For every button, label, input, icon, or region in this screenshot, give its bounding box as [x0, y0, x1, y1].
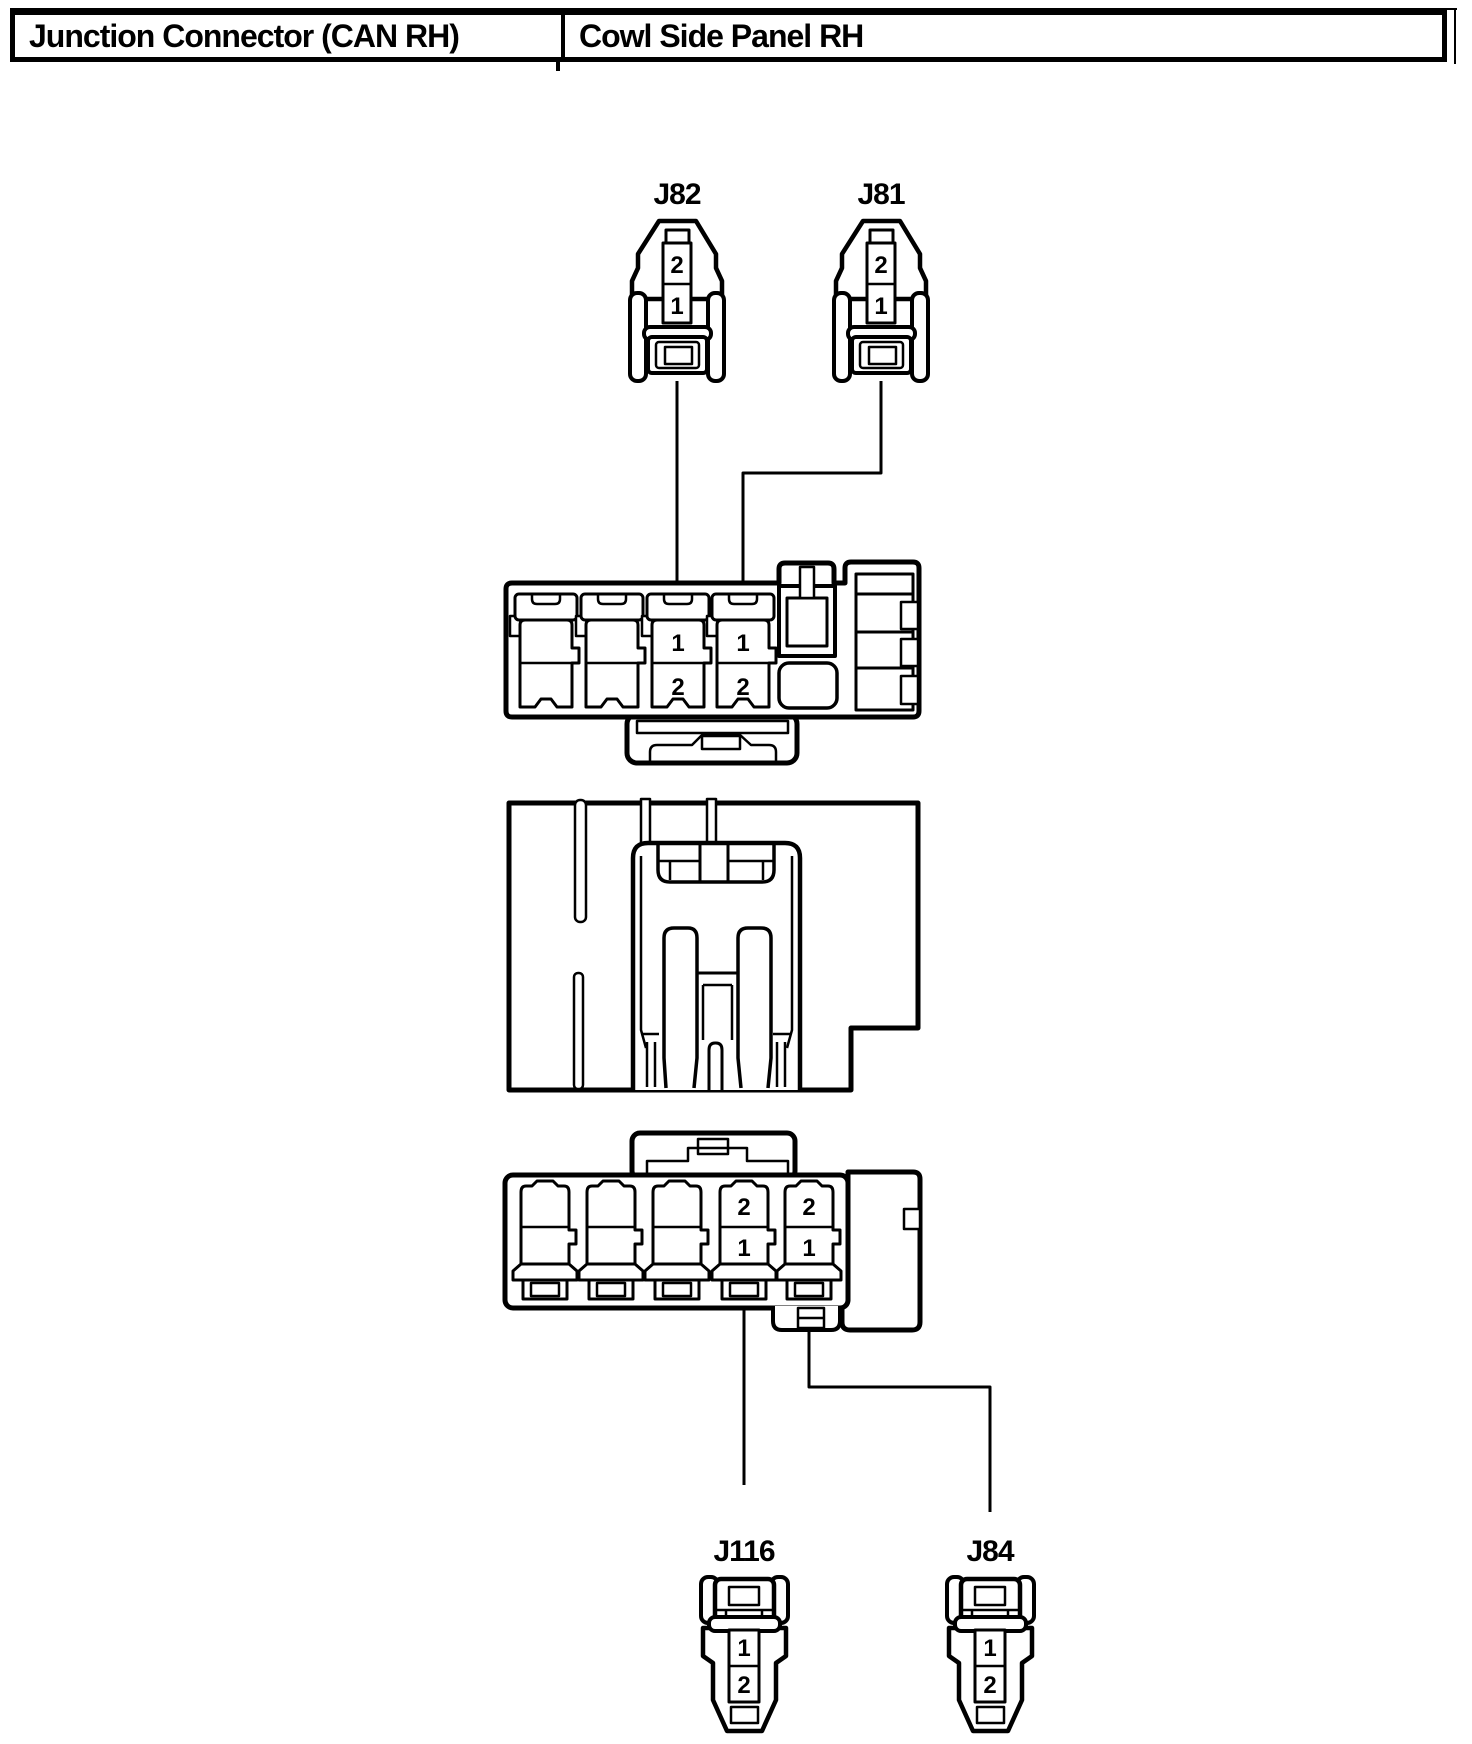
connector-label: J81	[857, 178, 904, 211]
cavity5-pin-2: 2	[802, 1194, 815, 1221]
connector-j81: J81 2 1	[834, 178, 928, 381]
bracket-slot-a	[575, 800, 586, 922]
connector-diagram: J82 2 1 J81 2 1 1 2 1 2	[0, 0, 1472, 1744]
cavity-3	[645, 1181, 709, 1299]
pin-1: 1	[737, 1635, 750, 1662]
right-notch-2	[901, 639, 918, 666]
key-cavity-inner	[787, 598, 827, 646]
block-extension	[842, 1172, 920, 1330]
pin-2: 2	[737, 1672, 750, 1699]
right-notch-3	[901, 676, 918, 704]
bracket-slot-b	[574, 973, 583, 1089]
pin-1: 1	[983, 1635, 996, 1662]
connector-j116: J116 1 2	[701, 1535, 788, 1731]
cavity4-pin-1: 1	[736, 630, 749, 657]
foot-slot	[637, 721, 788, 733]
lower-junction-block: 2 1 2 1	[505, 1133, 920, 1330]
key-stem	[800, 567, 814, 598]
middle-bracket-block	[509, 799, 918, 1090]
center-slot	[709, 1043, 722, 1090]
connector-label: J82	[653, 178, 700, 211]
prong-left	[664, 928, 697, 1088]
cavity3-pin-1: 1	[671, 630, 684, 657]
pin-2: 2	[670, 252, 683, 279]
bracket-slot-d	[707, 799, 716, 846]
right-cell-top	[856, 574, 913, 594]
cavity3-pin-2: 2	[671, 674, 684, 701]
cavity4-pin-1: 1	[737, 1235, 750, 1262]
extension-notch	[904, 1209, 920, 1229]
bracket-slot-c	[641, 799, 650, 846]
connector-j82: J82 2 1	[630, 178, 724, 381]
cavity-1	[513, 1181, 577, 1299]
right-notch-1	[901, 602, 918, 629]
tab-slot	[698, 1139, 728, 1154]
cavity-2	[576, 594, 645, 707]
pin-1: 1	[874, 293, 887, 320]
upper-junction-block: 1 2 1 2	[506, 562, 919, 763]
cavity-2	[579, 1181, 643, 1299]
cavity4-pin-2: 2	[736, 674, 749, 701]
pin-2: 2	[874, 252, 887, 279]
connector-label: J84	[966, 1535, 1014, 1568]
connector-label: J116	[713, 1535, 774, 1568]
round-cavity	[779, 663, 837, 708]
prong-right	[738, 928, 771, 1088]
cavity-1	[510, 594, 579, 707]
cavity4-pin-2: 2	[737, 1194, 750, 1221]
cavity5-pin-1: 1	[802, 1235, 815, 1262]
connector-j84: J84 1 2	[947, 1535, 1034, 1731]
pin-2: 2	[983, 1672, 996, 1699]
foot-tab	[702, 736, 740, 749]
pin-1: 1	[670, 293, 683, 320]
wiring-diagram-page: Junction Connector (CAN RH) Cowl Side Pa…	[0, 0, 1472, 1744]
